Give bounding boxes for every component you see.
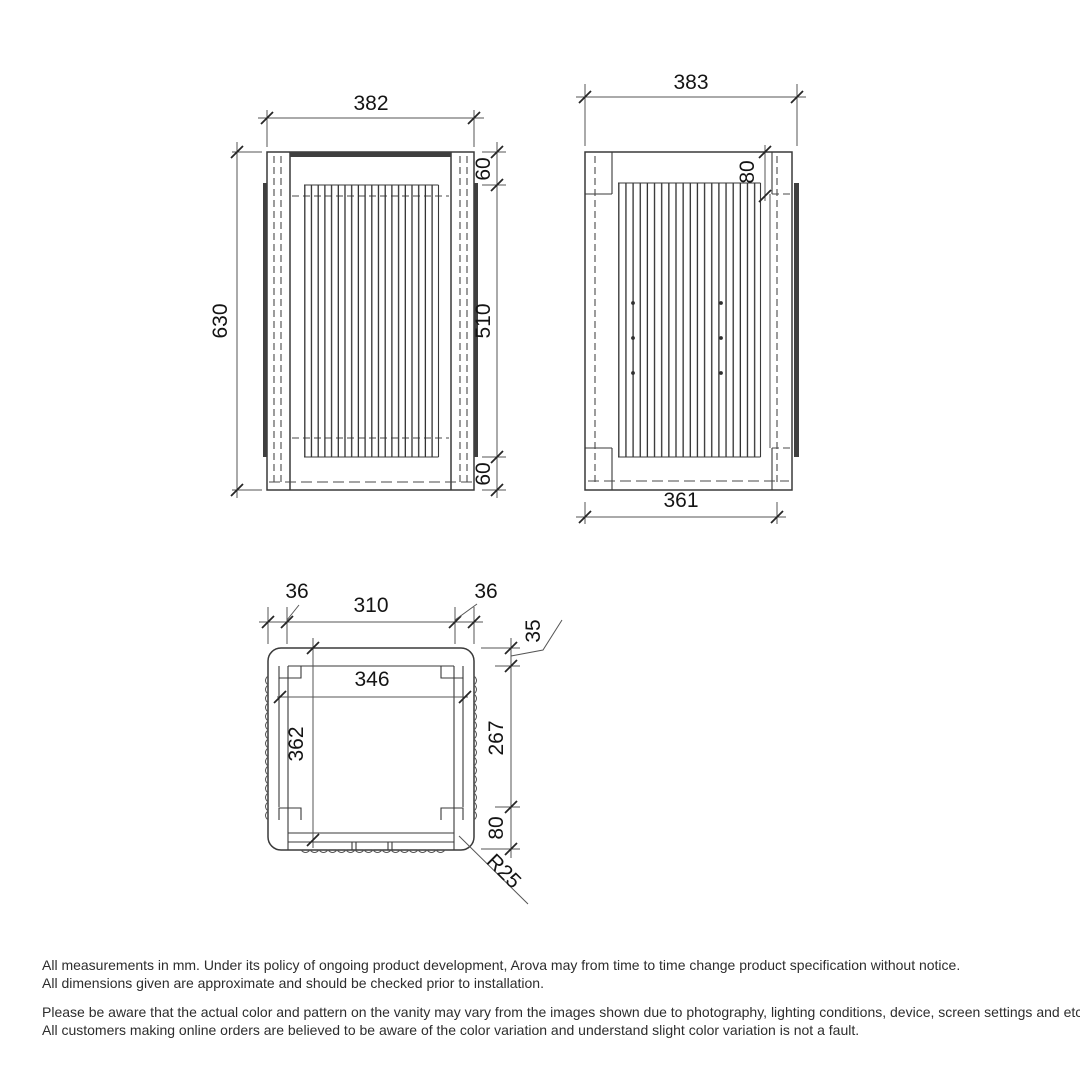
plan-front-zone-label: 80 [485, 816, 508, 839]
disclaimer: All measurements in mm. Under its policy… [42, 957, 1072, 1039]
disclaimer-paragraph-measurements: All measurements in mm. Under its policy… [42, 957, 1072, 992]
dimension-plan-corner-radius: R25 [459, 836, 528, 904]
front-panel-height-label: 510 [472, 303, 495, 338]
dimension-side-body-depth: 361 [576, 489, 786, 524]
plan-depth-to-front-label: 362 [285, 726, 308, 761]
disclaimer-line: All measurements in mm. Under its policy… [42, 957, 1072, 975]
plan-fluted-depth-label: 267 [485, 720, 508, 755]
side-depth-label: 383 [673, 71, 708, 94]
vanity-dimension-sheet: 382 630 60 510 60 [0, 0, 1080, 1080]
plan-inner-width-label: 346 [354, 668, 389, 691]
dimension-front-width: 382 [258, 92, 484, 147]
front-top-inset-label: 60 [472, 157, 495, 180]
plan-corner-radius-label: R25 [482, 850, 526, 894]
side-body-depth-label: 361 [663, 489, 698, 512]
side-fluted-panel [618, 183, 761, 457]
disclaimer-line: Please be aware that the actual color an… [42, 1004, 1072, 1022]
disclaimer-paragraph-color: Please be aware that the actual color an… [42, 1004, 1072, 1039]
dimension-plan-right-chain: 35 267 80 [481, 619, 562, 858]
front-width-label: 382 [353, 92, 388, 115]
disclaimer-line: All dimensions given are approximate and… [42, 975, 1072, 993]
plan-right-edge-label: 36 [474, 580, 497, 603]
front-bottom-inset-label: 60 [472, 462, 495, 485]
plan-opening-label: 310 [353, 594, 388, 617]
dimension-front-height: 630 [209, 142, 262, 498]
plan-view: 36 310 36 346 362 [259, 580, 562, 904]
disclaimer-line: All customers making online orders are b… [42, 1022, 1072, 1040]
front-fluted-panel [304, 185, 439, 457]
technical-drawing: 382 630 60 510 60 [0, 0, 1080, 945]
dimension-plan-top-chain: 36 310 36 [259, 580, 498, 644]
front-view: 382 630 60 510 60 [209, 92, 506, 498]
front-left-flute-edge [263, 183, 267, 457]
plan-wall-thickness-label: 35 [522, 619, 545, 642]
plan-left-edge-label: 36 [285, 580, 308, 603]
side-top-inset-label: 80 [736, 160, 759, 183]
dimension-plan-depth-to-front: 362 [285, 638, 319, 848]
plan-flute-scallops [266, 676, 477, 853]
front-top-rail-edge [290, 152, 451, 157]
side-door-edge [794, 183, 799, 457]
dimension-side-depth: 383 [576, 71, 806, 146]
front-height-label: 630 [209, 303, 232, 338]
side-view: 383 80 361 [576, 71, 806, 524]
